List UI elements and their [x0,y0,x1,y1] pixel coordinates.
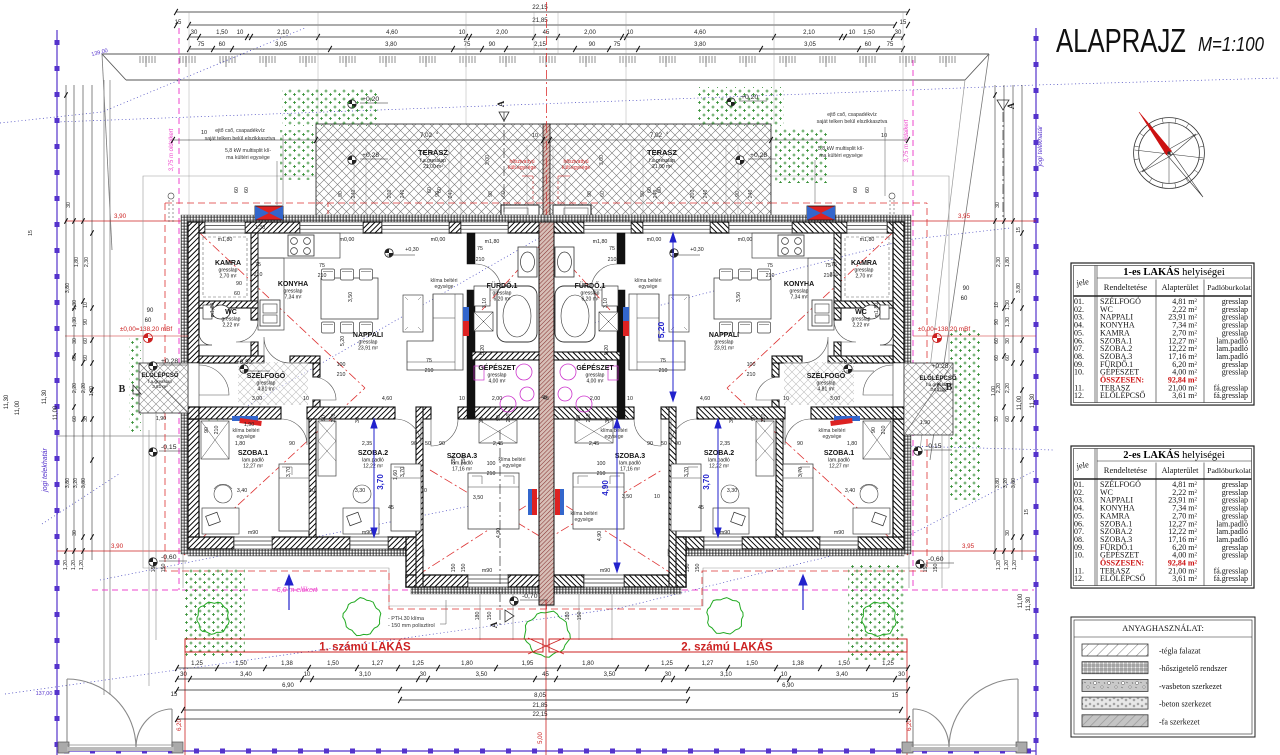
svg-text:10: 10 [421,488,427,494]
svg-text:7,02: 7,02 [650,132,663,139]
svg-text:3,10: 3,10 [359,672,371,678]
svg-text:2,30: 2,30 [84,257,90,267]
svg-text:SZOBA.1: SZOBA.1 [238,450,268,457]
svg-text:75: 75 [767,263,773,269]
svg-text:-vasbeton szerkezet: -vasbeton szerkezet [1159,682,1223,691]
svg-text:30: 30 [66,202,72,208]
svg-text:12,22 m²: 12,22 m² [363,464,383,470]
svg-text:1,25: 1,25 [191,661,203,667]
svg-text:jele: jele [1075,459,1090,471]
svg-text:210: 210 [586,414,592,423]
svg-text:6,20: 6,20 [907,719,913,731]
svg-text:2,10: 2,10 [803,30,815,36]
svg-text:saját telken belül elszikkaszt: saját telken belül elszikkasztva [205,136,276,142]
svg-text:ELŐLÉPCSŐ: ELŐLÉPCSŐ [919,374,956,382]
svg-text:3,10: 3,10 [603,298,609,308]
svg-text:90: 90 [83,319,89,325]
svg-text:kült.egysége: kült.egysége [508,165,536,171]
svg-text:210: 210 [214,426,220,435]
svg-text:-0,60: -0,60 [928,556,944,563]
svg-text:1,80: 1,80 [235,441,245,447]
svg-text:60: 60 [865,187,871,193]
svg-text:60: 60 [600,191,606,197]
svg-text:90: 90 [647,441,653,447]
svg-text:10.: 10. [1074,551,1084,560]
svg-text:1,80: 1,80 [847,441,857,447]
svg-text:60: 60 [647,187,653,193]
svg-text:3,95: 3,95 [958,213,971,220]
svg-text:+0,30: +0,30 [405,247,418,253]
svg-text:1,38: 1,38 [281,661,293,667]
svg-text:+0,28: +0,28 [161,358,178,365]
svg-text:30: 30 [1005,530,1011,536]
svg-text:30: 30 [898,672,905,678]
svg-text:m0,00: m0,00 [647,237,662,243]
svg-text:3,70: 3,70 [798,467,804,477]
svg-text:±0,00=138,20 mBf: ±0,00=138,20 mBf [918,326,971,333]
svg-text:5,8 kW multisplit klí-: 5,8 kW multisplit klí- [225,148,271,154]
svg-text:150: 150 [161,564,167,573]
svg-text:210: 210 [824,273,833,279]
svg-text:jogi telekhatár: jogi telekhatár [1037,125,1044,167]
svg-text:m1,80: m1,80 [210,303,216,318]
svg-text:7,34 m²: 7,34 m² [791,295,808,301]
svg-text:fá.gresslap: fá.gresslap [1214,391,1248,400]
svg-text:10: 10 [881,133,887,139]
svg-text:180: 180 [565,612,571,621]
svg-text:210: 210 [881,426,887,435]
svg-text:1,30: 1,30 [1005,300,1011,310]
svg-text:210: 210 [766,273,775,279]
svg-text:23,91 m²: 23,91 m² [358,346,378,352]
svg-text:A: A [1006,102,1016,109]
svg-text:210: 210 [608,257,617,263]
svg-text:150: 150 [685,564,691,573]
svg-text:10: 10 [994,302,1000,308]
svg-text:-0,60: -0,60 [161,554,177,561]
svg-text:30: 30 [994,416,1000,422]
svg-text:-0,15: -0,15 [161,444,177,451]
svg-text:2,70 m²: 2,70 m² [856,274,873,280]
svg-text:6,90: 6,90 [782,683,794,689]
svg-text:10: 10 [627,396,633,402]
svg-text:12,27 m²: 12,27 m² [829,464,849,470]
svg-text:3,10: 3,10 [482,298,488,308]
svg-text:60: 60 [994,338,1000,344]
svg-text:3,05: 3,05 [804,42,816,48]
svg-text:1,50: 1,50 [746,661,758,667]
svg-text:-beton szerkezet: -beton szerkezet [1159,700,1212,709]
svg-text:Alapterület: Alapterület [1162,466,1200,475]
svg-text:1,25: 1,25 [412,661,424,667]
svg-text:11,00: 11,00 [53,405,59,420]
svg-text:Alapterület: Alapterület [1162,283,1200,292]
svg-text:ejtő cső, csapadékvíz: ejtő cső, csapadékvíz [827,112,877,118]
svg-text:3,80: 3,80 [65,478,71,488]
svg-text:3,80: 3,80 [995,478,1001,488]
svg-text:SZOBA.1: SZOBA.1 [824,450,854,457]
svg-text:FÜRDŐ.1: FÜRDŐ.1 [575,281,606,290]
svg-text:M=1:100: M=1:100 [1198,34,1264,56]
svg-text:90: 90 [289,441,295,447]
svg-text:1,90: 1,90 [920,420,930,426]
svg-text:3,90: 3,90 [114,213,127,220]
svg-text:90: 90 [321,415,327,421]
svg-text:75: 75 [614,42,621,48]
svg-text:60: 60 [83,355,89,361]
svg-text:10: 10 [83,302,89,308]
svg-text:A: A [496,100,506,107]
svg-text:6,20 m²: 6,20 m² [582,297,599,303]
svg-text:+0,30: +0,30 [690,247,703,253]
svg-text:21,85: 21,85 [532,17,548,24]
svg-text:12,22 m²: 12,22 m² [709,464,729,470]
svg-text:21,00 m²: 21,00 m² [423,164,443,170]
svg-text:3,10: 3,10 [720,672,732,678]
svg-text:30: 30 [355,417,361,423]
svg-text:ma kültéri egysége: ma kültéri egysége [226,155,270,161]
svg-text:1,50: 1,50 [863,30,875,36]
svg-text:90: 90 [751,415,757,421]
svg-text:TERASZ: TERASZ [647,148,677,157]
svg-text:1,00: 1,00 [991,386,997,396]
svg-text:50: 50 [425,441,431,447]
svg-text:150: 150 [451,564,457,573]
svg-text:50: 50 [661,441,667,447]
svg-text:3,50: 3,50 [473,495,483,501]
svg-text:A: A [489,621,499,628]
svg-text:90: 90 [496,415,502,421]
svg-text:210: 210 [318,273,327,279]
svg-text:3,61 m2: 3,61 m2 [1172,574,1197,583]
svg-text:1,30: 1,30 [1005,317,1011,327]
svg-text:+0,30: +0,30 [840,359,856,366]
svg-text:2,35: 2,35 [362,441,372,447]
svg-text:75: 75 [255,262,261,268]
svg-text:1,60: 1,60 [393,470,399,480]
svg-text:90: 90 [439,441,445,447]
svg-text:- PTH.30 klíma: - PTH.30 klíma [388,616,424,622]
svg-text:1,50: 1,50 [235,661,247,667]
svg-text:SZOBA.3: SZOBA.3 [615,453,645,460]
svg-text:egysége: egysége [639,284,658,290]
svg-text:ma kültéri egysége: ma kültéri egysége [819,153,863,159]
svg-text:11,30: 11,30 [4,394,10,409]
svg-text:egysége: egysége [503,463,522,469]
svg-text:6,20 m²: 6,20 m² [494,297,511,303]
svg-text:4,60: 4,60 [382,396,392,402]
svg-text:SZOBA.2: SZOBA.2 [358,450,388,457]
svg-text:210: 210 [761,414,767,423]
svg-text:210: 210 [337,372,346,378]
svg-text:m1,80: m1,80 [218,237,233,243]
svg-text:6,20: 6,20 [177,719,183,731]
svg-text:22,15: 22,15 [532,712,548,718]
svg-text:210: 210 [747,372,756,378]
svg-text:15: 15 [892,693,899,699]
svg-text:15: 15 [900,20,907,26]
svg-text:30: 30 [605,417,611,423]
svg-text:75: 75 [831,262,837,268]
svg-text:12.: 12. [1074,574,1084,583]
svg-text:3,40: 3,40 [240,672,252,678]
svg-text:10: 10 [849,30,856,36]
svg-text:1,80: 1,80 [582,661,594,667]
svg-text:10: 10 [532,133,538,139]
svg-text:-tégla falazat: -tégla falazat [1159,647,1201,656]
svg-text:1,00: 1,00 [89,386,95,396]
svg-text:1,30: 1,30 [255,225,265,231]
svg-text:3,75 m oldalkert: 3,75 m oldalkert [169,128,175,171]
svg-text:30: 30 [479,417,485,423]
svg-text:fá.gresslap: fá.gresslap [1214,574,1248,583]
svg-text:5,8 kW multisplit klí-: 5,8 kW multisplit klí- [818,146,864,152]
svg-text:Rendeltetése: Rendeltetése [1104,465,1148,475]
svg-text:SZOBA.2: SZOBA.2 [704,450,734,457]
svg-text:3,90: 3,90 [111,543,124,550]
svg-text:75: 75 [198,42,205,48]
svg-text:3,80: 3,80 [694,42,706,48]
svg-text:11,00: 11,00 [1017,395,1023,410]
svg-text:30: 30 [83,416,89,422]
svg-text:m90: m90 [362,530,372,536]
svg-text:100: 100 [597,461,606,467]
svg-text:60: 60 [145,318,152,324]
svg-text:150: 150 [461,456,467,465]
svg-text:17,16 m²: 17,16 m² [452,467,472,473]
svg-text:30: 30 [995,202,1001,208]
svg-text:SZÉLFOGÓ: SZÉLFOGÓ [807,371,846,380]
svg-text:4,90: 4,90 [496,528,502,538]
svg-text:60: 60 [72,355,78,361]
svg-text:90: 90 [489,42,496,48]
svg-text:2,10: 2,10 [277,30,289,36]
svg-text:180: 180 [475,612,481,621]
svg-text:150: 150 [461,564,467,573]
svg-text:3,50: 3,50 [604,672,616,678]
svg-text:3,50: 3,50 [622,494,632,500]
svg-text:1,80: 1,80 [74,257,80,267]
svg-text:60: 60 [865,42,872,48]
svg-text:60: 60 [1005,416,1011,422]
svg-text:150: 150 [487,612,493,621]
svg-text:1,20: 1,20 [63,560,69,570]
svg-text:m90: m90 [600,568,610,574]
svg-text:100: 100 [747,362,756,368]
svg-text:egysége: egysége [237,434,256,440]
svg-text:2,22 m²: 2,22 m² [853,323,870,329]
svg-text:1,50: 1,50 [327,661,339,667]
svg-text:150: 150 [695,564,701,573]
svg-text:10: 10 [627,30,634,36]
svg-text:kült.egysége: kült.egysége [562,165,590,171]
svg-text:4,60: 4,60 [700,396,710,402]
svg-text:Padlóburkolat: Padlóburkolat [1207,466,1252,475]
svg-text:75: 75 [887,42,894,48]
svg-text:1,25: 1,25 [661,661,673,667]
svg-text:10: 10 [781,672,788,678]
svg-text:3,20: 3,20 [1003,478,1009,488]
svg-text:1,30: 1,30 [72,300,78,310]
svg-text:200: 200 [690,190,696,199]
svg-text:23,91 m²: 23,91 m² [714,346,734,352]
svg-text:90: 90 [963,286,970,292]
svg-text:egysége: egysége [823,434,842,440]
svg-text:m0,00: m0,00 [738,237,753,243]
svg-text:7,34 m²: 7,34 m² [285,295,302,301]
svg-text:11,00: 11,00 [15,400,21,415]
svg-text:1,20: 1,20 [1012,560,1018,570]
svg-text:1,50: 1,50 [838,661,850,667]
svg-text:2,22 m²: 2,22 m² [223,323,240,329]
svg-text:5,20: 5,20 [480,345,486,355]
svg-text:90: 90 [675,441,681,447]
svg-text:1,38: 1,38 [792,661,804,667]
svg-text:6,90: 6,90 [282,683,294,689]
svg-text:m1,80: m1,80 [860,237,875,243]
svg-text:m1,80: m1,80 [485,239,500,245]
svg-text:30: 30 [180,672,187,678]
svg-text:21,00 m²: 21,00 m² [652,164,672,170]
svg-text:TERASZ: TERASZ [418,148,448,157]
svg-text:2,30: 2,30 [996,257,1002,267]
svg-text:SZÉLFOGÓ: SZÉLFOGÓ [247,371,286,380]
svg-text:3,80: 3,80 [385,42,397,48]
svg-text:15: 15 [28,230,34,236]
svg-text:22,15: 22,15 [532,4,548,11]
svg-text:2-es LAKÁS helyiségei: 2-es LAKÁS helyiségei [1123,449,1225,461]
svg-text:FÜRDŐ.1: FÜRDŐ.1 [487,281,518,290]
svg-text:90: 90 [147,308,154,314]
svg-text:15: 15 [1016,227,1022,233]
svg-text:30: 30 [729,417,735,423]
svg-text:2,00: 2,00 [496,30,508,36]
svg-text:17,16 m²: 17,16 m² [620,467,640,473]
svg-text:1-es LAKÁS helyiségei: 1-es LAKÁS helyiségei [1123,266,1225,278]
svg-text:10: 10 [309,488,315,494]
svg-text:3,30: 3,30 [355,488,365,494]
svg-text:+0,28: +0,28 [362,152,379,159]
svg-text:11,30: 11,30 [42,389,48,404]
svg-text:240: 240 [703,190,709,199]
svg-text:3,50: 3,50 [348,292,354,302]
svg-text:2,20: 2,20 [1005,383,1011,393]
svg-text:60: 60 [1005,355,1011,361]
svg-text:30: 30 [420,672,427,678]
svg-text:WC: WC [855,309,867,316]
svg-text:5,20: 5,20 [656,321,666,338]
svg-text:5,0 m előkert: 5,0 m előkert [277,587,319,594]
svg-text:3,80: 3,80 [81,478,87,488]
svg-text:m0,00: m0,00 [431,237,446,243]
svg-text:1,80: 1,80 [1005,257,1011,267]
svg-text:60: 60 [219,42,226,48]
svg-text:150: 150 [451,456,457,465]
svg-text:3,30: 3,30 [727,488,737,494]
svg-text:B: B [119,384,126,395]
svg-text:- 150 mm polisztirol: - 150 mm polisztirol [388,623,435,629]
svg-text:90: 90 [587,191,593,197]
svg-text:KAMRA: KAMRA [851,260,877,267]
svg-text:2. számú LAKÁS: 2. számú LAKÁS [681,641,773,654]
svg-text:90: 90 [338,191,344,197]
svg-text:4,60: 4,60 [694,30,706,36]
svg-text:±0,00=138,20 mBf: ±0,00=138,20 mBf [120,326,173,333]
svg-text:4,00 m²: 4,00 m² [489,379,506,385]
svg-text:90: 90 [488,191,494,197]
svg-text:210: 210 [659,368,668,374]
svg-text:1,90: 1,90 [244,422,254,428]
svg-text:200: 200 [387,190,393,199]
svg-text:ejtő cső, csapadékvíz: ejtő cső, csapadékvíz [215,128,265,134]
svg-text:4,90: 4,90 [601,480,610,496]
svg-text:11,00: 11,00 [1018,593,1024,608]
svg-text:30: 30 [72,338,78,344]
svg-text:60: 60 [72,416,78,422]
svg-text:60: 60 [244,187,250,193]
svg-text:240: 240 [748,190,754,199]
svg-text:ANYAGHASZNÁLAT:: ANYAGHASZNÁLAT: [1122,623,1204,633]
svg-text:75: 75 [477,246,483,252]
svg-text:45: 45 [541,395,547,401]
svg-text:GÉPÉSZET: GÉPÉSZET [576,363,614,372]
svg-text:egysége: egysége [605,434,624,440]
svg-text:3,61 m²: 3,61 m² [152,384,168,389]
svg-text:-hőszigetelő rendszer: -hőszigetelő rendszer [1159,664,1228,673]
svg-text:1,20: 1,20 [71,560,77,570]
svg-text:-0,15: -0,15 [926,443,942,450]
svg-text:2,45: 2,45 [589,441,599,447]
svg-text:10: 10 [303,396,309,402]
svg-text:ALAPRAJZ: ALAPRAJZ [1056,22,1186,59]
svg-text:1,25: 1,25 [882,661,894,667]
svg-text:5,00: 5,00 [538,732,544,744]
svg-text:1,30: 1,30 [72,317,78,327]
svg-text:3,80: 3,80 [1016,283,1022,293]
svg-text:137,00: 137,00 [36,691,53,697]
svg-text:100: 100 [487,461,496,467]
svg-text:4,00 m²: 4,00 m² [587,379,604,385]
svg-text:ELŐLÉPCSŐ: ELŐLÉPCSŐ [1100,390,1146,400]
svg-text:21,85: 21,85 [532,703,548,709]
svg-text:KONYHA: KONYHA [784,281,814,288]
svg-text:30: 30 [1005,338,1011,344]
svg-text:4,60: 4,60 [386,30,398,36]
svg-text:45: 45 [388,505,394,511]
svg-text:3,70: 3,70 [684,467,690,477]
svg-text:30: 30 [665,672,672,678]
svg-text:m90: m90 [834,530,844,536]
svg-text:90: 90 [576,415,582,421]
svg-text:75: 75 [464,42,471,48]
svg-text:m90: m90 [720,530,730,536]
svg-text:75: 75 [609,246,615,252]
svg-text:10: 10 [783,396,789,402]
svg-text:5,20: 5,20 [604,345,610,355]
svg-text:10.: 10. [1074,368,1084,377]
svg-text:90: 90 [236,281,242,287]
svg-text:2,00: 2,00 [492,396,502,402]
svg-text:1,27: 1,27 [702,661,714,667]
svg-text:+0,28: +0,28 [750,152,767,159]
svg-text:egysége: egysége [435,284,454,290]
svg-text:10: 10 [777,488,783,494]
svg-text:3,70: 3,70 [702,474,711,490]
svg-text:15: 15 [171,692,178,698]
svg-text:3,40: 3,40 [836,672,848,678]
svg-text:2,20: 2,20 [81,383,87,393]
svg-text:60: 60 [853,187,859,193]
